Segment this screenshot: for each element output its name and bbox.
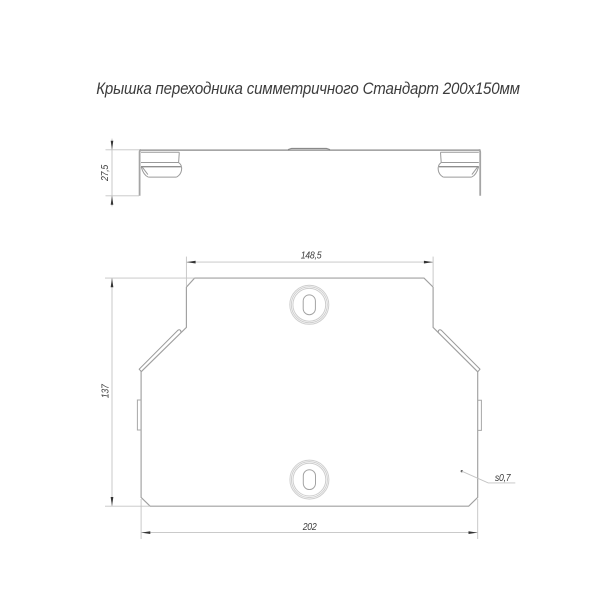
svg-text:s0,7: s0,7 (495, 472, 511, 484)
svg-text:137: 137 (100, 384, 112, 399)
svg-text:Крышка переходника симметрично: Крышка переходника симметричного Стандар… (96, 79, 520, 98)
svg-text:202: 202 (302, 521, 318, 533)
svg-text:27,5: 27,5 (99, 164, 111, 182)
svg-text:148,5: 148,5 (301, 250, 322, 262)
